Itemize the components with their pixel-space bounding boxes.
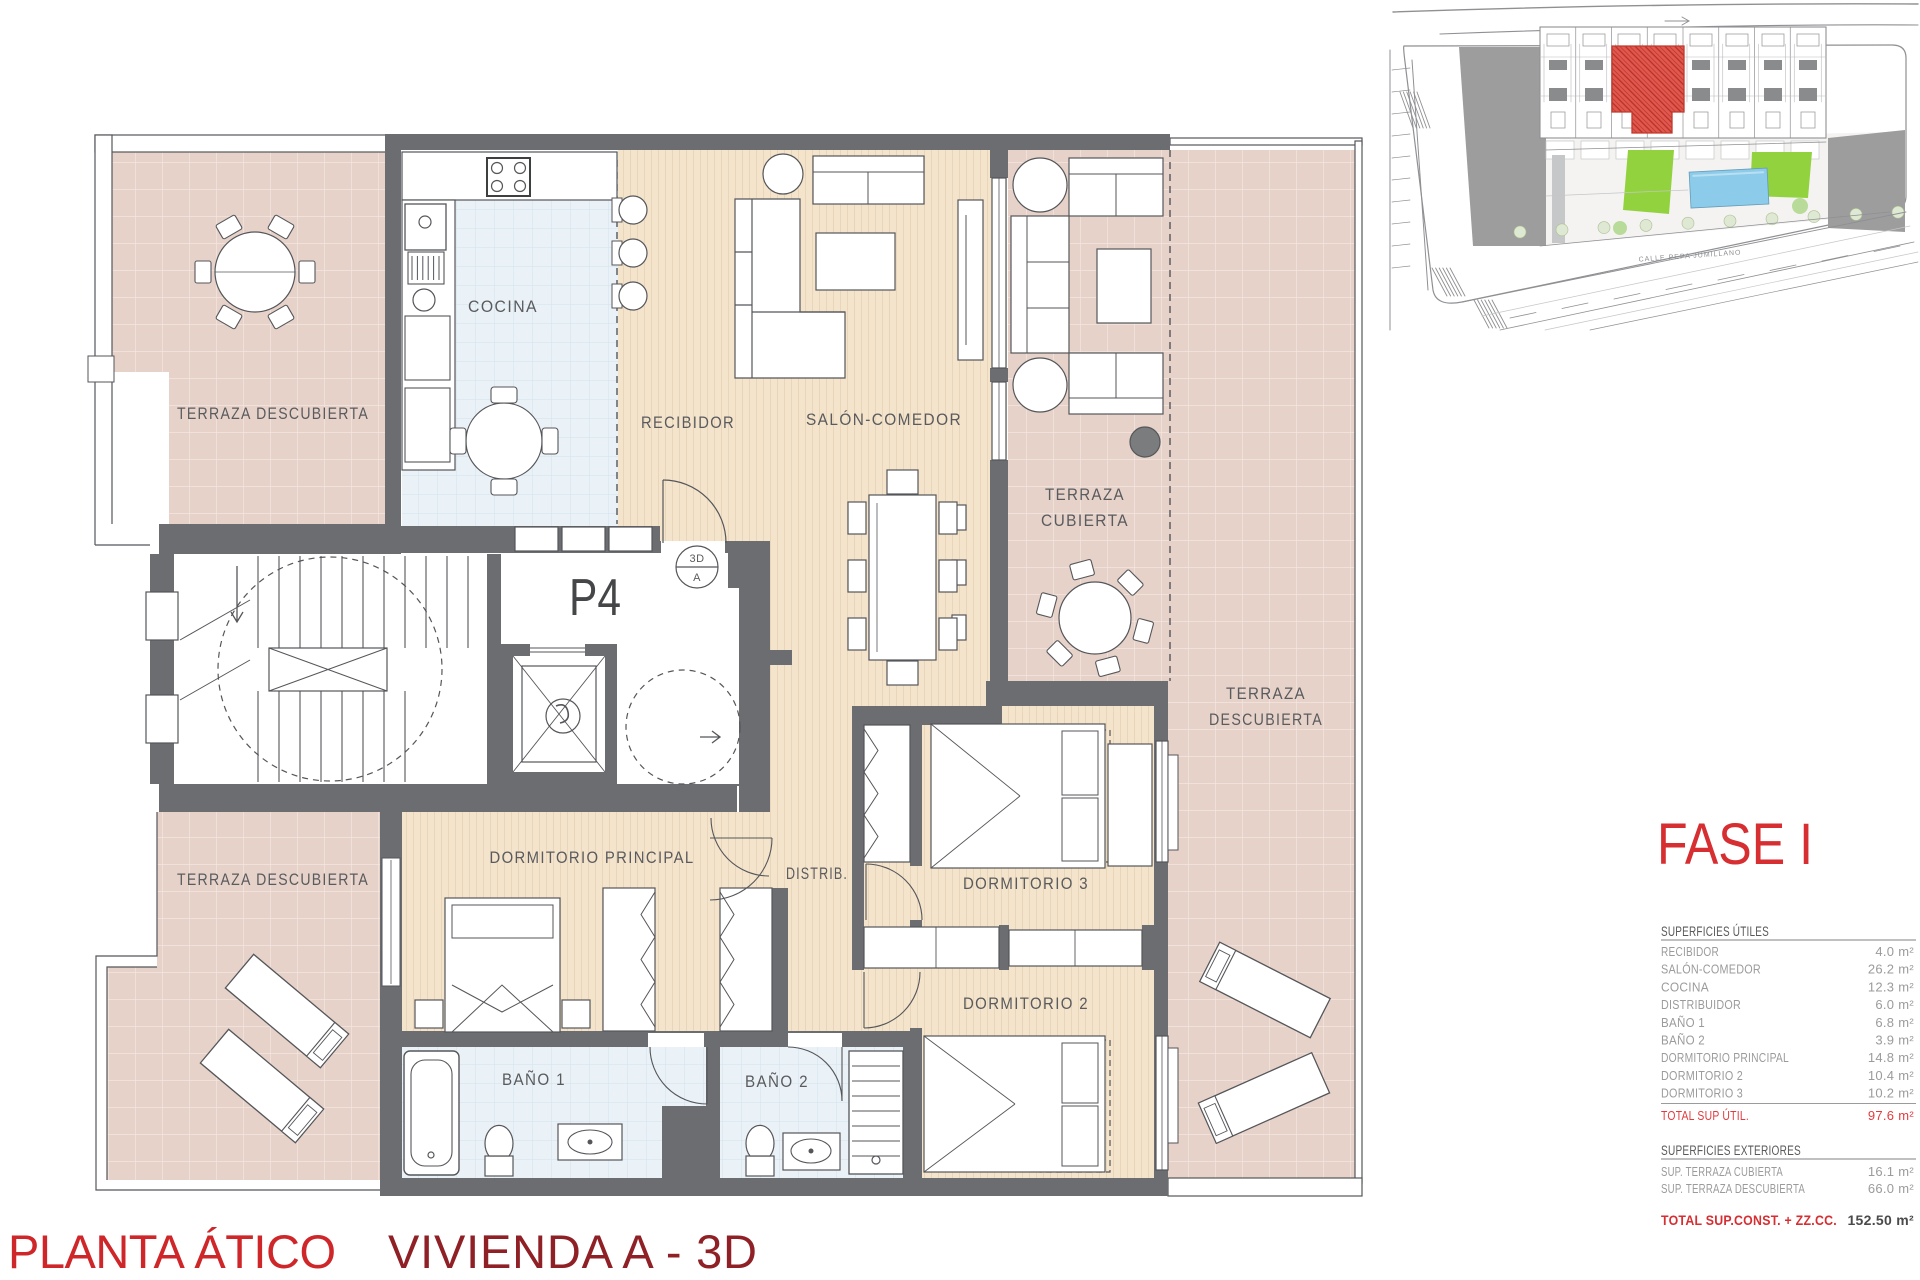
svg-text:DORMITORIO 3: DORMITORIO 3 [1661, 1086, 1743, 1101]
svg-text:TERRAZA: TERRAZA [1045, 486, 1125, 504]
svg-text:3D: 3D [689, 553, 704, 565]
svg-text:TERRAZA DESCUBIERTA: TERRAZA DESCUBIERTA [177, 405, 369, 423]
svg-text:COCINA: COCINA [468, 298, 538, 316]
svg-text:PLANTA ÁTICO: PLANTA ÁTICO [8, 1225, 336, 1278]
svg-text:97.6 m²: 97.6 m² [1868, 1108, 1915, 1123]
svg-text:3.9 m²: 3.9 m² [1875, 1033, 1914, 1048]
svg-text:DORMITORIO 2: DORMITORIO 2 [963, 995, 1089, 1013]
svg-text:16.1 m²: 16.1 m² [1868, 1164, 1915, 1179]
svg-text:DESCUBIERTA: DESCUBIERTA [1209, 711, 1323, 729]
svg-text:26.2 m²: 26.2 m² [1868, 962, 1915, 977]
svg-text:BAÑO 1: BAÑO 1 [1661, 1015, 1705, 1030]
svg-text:DORMITORIO PRINCIPAL: DORMITORIO PRINCIPAL [490, 849, 695, 867]
svg-text:SUPERFICIES ÚTILES: SUPERFICIES ÚTILES [1661, 924, 1769, 939]
svg-text:SALÓN-COMEDOR: SALÓN-COMEDOR [1661, 962, 1761, 977]
svg-text:66.0 m²: 66.0 m² [1868, 1181, 1915, 1196]
svg-text:TOTAL SUP.CONST. + ZZ.CC.: TOTAL SUP.CONST. + ZZ.CC. [1661, 1212, 1837, 1228]
svg-text:10.4 m²: 10.4 m² [1868, 1068, 1915, 1083]
svg-text:SUP. TERRAZA DESCUBIERTA: SUP. TERRAZA DESCUBIERTA [1661, 1181, 1805, 1196]
svg-text:152.50 m²: 152.50 m² [1847, 1212, 1914, 1228]
svg-text:SUP. TERRAZA CUBIERTA: SUP. TERRAZA CUBIERTA [1661, 1164, 1783, 1179]
svg-text:DORMITORIO 2: DORMITORIO 2 [1661, 1068, 1743, 1083]
svg-text:P4: P4 [569, 569, 621, 627]
svg-text:DISTRIBUIDOR: DISTRIBUIDOR [1661, 997, 1741, 1012]
svg-text:VIVIENDA A - 3D: VIVIENDA A - 3D [388, 1225, 757, 1278]
svg-text:DORMITORIO 3: DORMITORIO 3 [963, 875, 1089, 893]
svg-text:SALÓN-COMEDOR: SALÓN-COMEDOR [806, 410, 962, 429]
svg-text:6.8 m²: 6.8 m² [1875, 1015, 1914, 1030]
svg-text:10.2 m²: 10.2 m² [1868, 1086, 1915, 1101]
svg-text:12.3 m²: 12.3 m² [1868, 979, 1915, 994]
svg-text:RECIBIDOR: RECIBIDOR [641, 414, 735, 432]
svg-text:A: A [693, 572, 701, 584]
svg-text:4.0 m²: 4.0 m² [1875, 944, 1914, 959]
svg-text:TERRAZA DESCUBIERTA: TERRAZA DESCUBIERTA [177, 871, 369, 889]
svg-text:TOTAL SUP ÚTIL.: TOTAL SUP ÚTIL. [1661, 1108, 1749, 1123]
svg-text:SUPERFICIES EXTERIORES: SUPERFICIES EXTERIORES [1661, 1143, 1801, 1158]
svg-text:COCINA: COCINA [1661, 979, 1709, 994]
svg-text:DORMITORIO PRINCIPAL: DORMITORIO PRINCIPAL [1661, 1050, 1789, 1065]
svg-text:FASE I: FASE I [1657, 812, 1813, 877]
svg-text:BAÑO 2: BAÑO 2 [745, 1071, 809, 1091]
svg-text:BAÑO 1: BAÑO 1 [502, 1069, 566, 1089]
svg-text:RECIBIDOR: RECIBIDOR [1661, 944, 1719, 959]
svg-text:14.8 m²: 14.8 m² [1868, 1050, 1915, 1065]
svg-text:CUBIERTA: CUBIERTA [1041, 512, 1129, 530]
svg-text:DISTRIB.: DISTRIB. [786, 865, 848, 883]
svg-text:TERRAZA: TERRAZA [1226, 685, 1306, 703]
svg-text:BAÑO 2: BAÑO 2 [1661, 1033, 1705, 1048]
svg-text:6.0 m²: 6.0 m² [1875, 997, 1914, 1012]
